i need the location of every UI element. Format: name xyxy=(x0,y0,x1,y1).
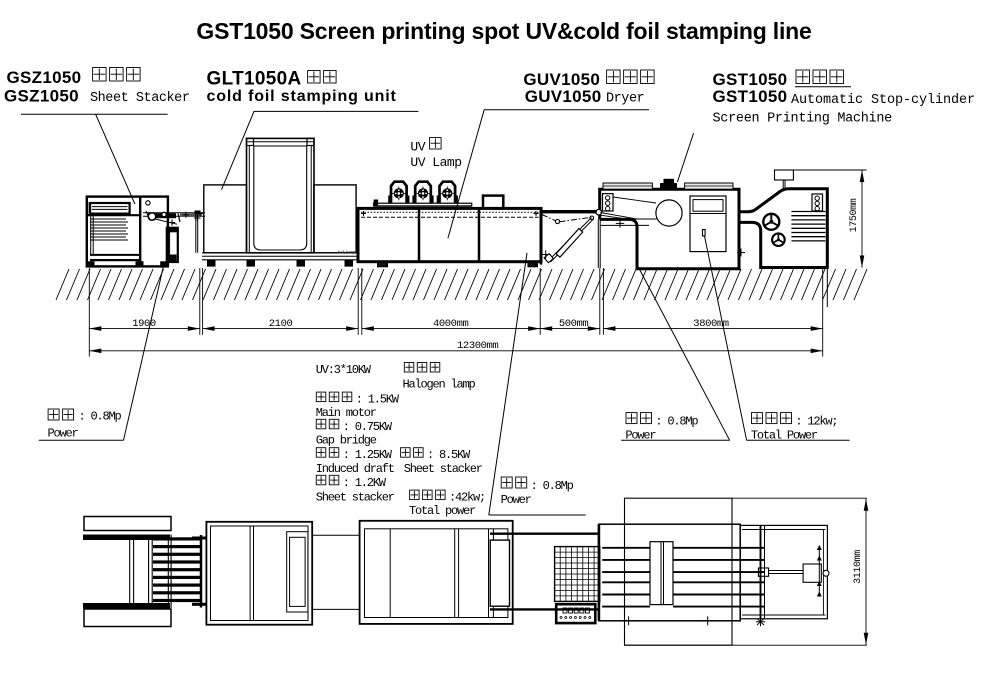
svg-text:: 1.2KW: : 1.2KW xyxy=(343,476,387,490)
svg-text:UV:3*10KW: UV:3*10KW xyxy=(316,363,372,377)
svg-text:4wd tamped: 4wd tamped xyxy=(337,250,360,256)
svg-text:2100: 2100 xyxy=(269,318,293,330)
svg-text:Power: Power xyxy=(48,427,79,441)
svg-text:: 1.25KW: : 1.25KW xyxy=(343,448,393,462)
svg-text:GUV1050: GUV1050 xyxy=(525,87,602,106)
svg-text:: 0.8Mp: : 0.8Mp xyxy=(531,479,574,493)
svg-text:Induced draft: Induced draft xyxy=(316,462,394,476)
svg-text:Total power: Total power xyxy=(409,504,476,518)
svg-text:12300mm: 12300mm xyxy=(457,340,498,352)
svg-text:: 0.8Mp: : 0.8Mp xyxy=(655,415,698,429)
svg-text:Sheet stacker: Sheet stacker xyxy=(316,491,395,505)
svg-text:GSZ1050: GSZ1050 xyxy=(7,68,82,87)
svg-text:: 8.5KW: : 8.5KW xyxy=(427,448,471,462)
svg-text:Sheet Stacker: Sheet Stacker xyxy=(90,91,189,106)
svg-text:Sheet stacker: Sheet stacker xyxy=(404,462,483,476)
svg-text:1900: 1900 xyxy=(132,318,156,330)
svg-text::42kw;: :42kw; xyxy=(449,491,485,505)
svg-text:Automatic Stop-cylinder: Automatic Stop-cylinder xyxy=(791,93,975,108)
svg-text:350: 350 xyxy=(378,262,386,268)
svg-text:500mm: 500mm xyxy=(559,318,589,330)
svg-text:GSZ1050: GSZ1050 xyxy=(4,87,79,106)
svg-text:: 0.75KW: : 0.75KW xyxy=(343,420,393,434)
svg-text:Gap bridge: Gap bridge xyxy=(316,434,377,448)
svg-text:1750mm: 1750mm xyxy=(849,198,860,232)
svg-text:GST1050: GST1050 xyxy=(713,87,788,106)
svg-text:401: 401 xyxy=(527,262,535,268)
svg-text:Screen Printing Machine: Screen Printing Machine xyxy=(713,112,893,127)
svg-text:: 12kw;: : 12kw; xyxy=(795,415,837,429)
svg-text:UV: UV xyxy=(410,140,425,155)
svg-text:: 1.5KW: : 1.5KW xyxy=(356,393,400,407)
svg-text:: 0.8Mp: : 0.8Mp xyxy=(79,410,122,424)
svg-text:4000mm: 4000mm xyxy=(433,318,469,330)
svg-text:UV Lamp: UV Lamp xyxy=(410,155,461,170)
svg-text:Halogen lamp: Halogen lamp xyxy=(403,378,476,392)
svg-text:3110mm: 3110mm xyxy=(853,550,864,584)
svg-text:GLT1050A: GLT1050A xyxy=(207,69,302,90)
svg-text:Power: Power xyxy=(501,493,532,507)
svg-text:Main motor: Main motor xyxy=(316,406,377,420)
svg-text:cold foil stamping unit: cold foil stamping unit xyxy=(207,88,397,105)
svg-text:Dryer: Dryer xyxy=(606,92,644,107)
svg-text:GST1050 Screen printing spot U: GST1050 Screen printing spot UV&cold foi… xyxy=(196,18,811,44)
